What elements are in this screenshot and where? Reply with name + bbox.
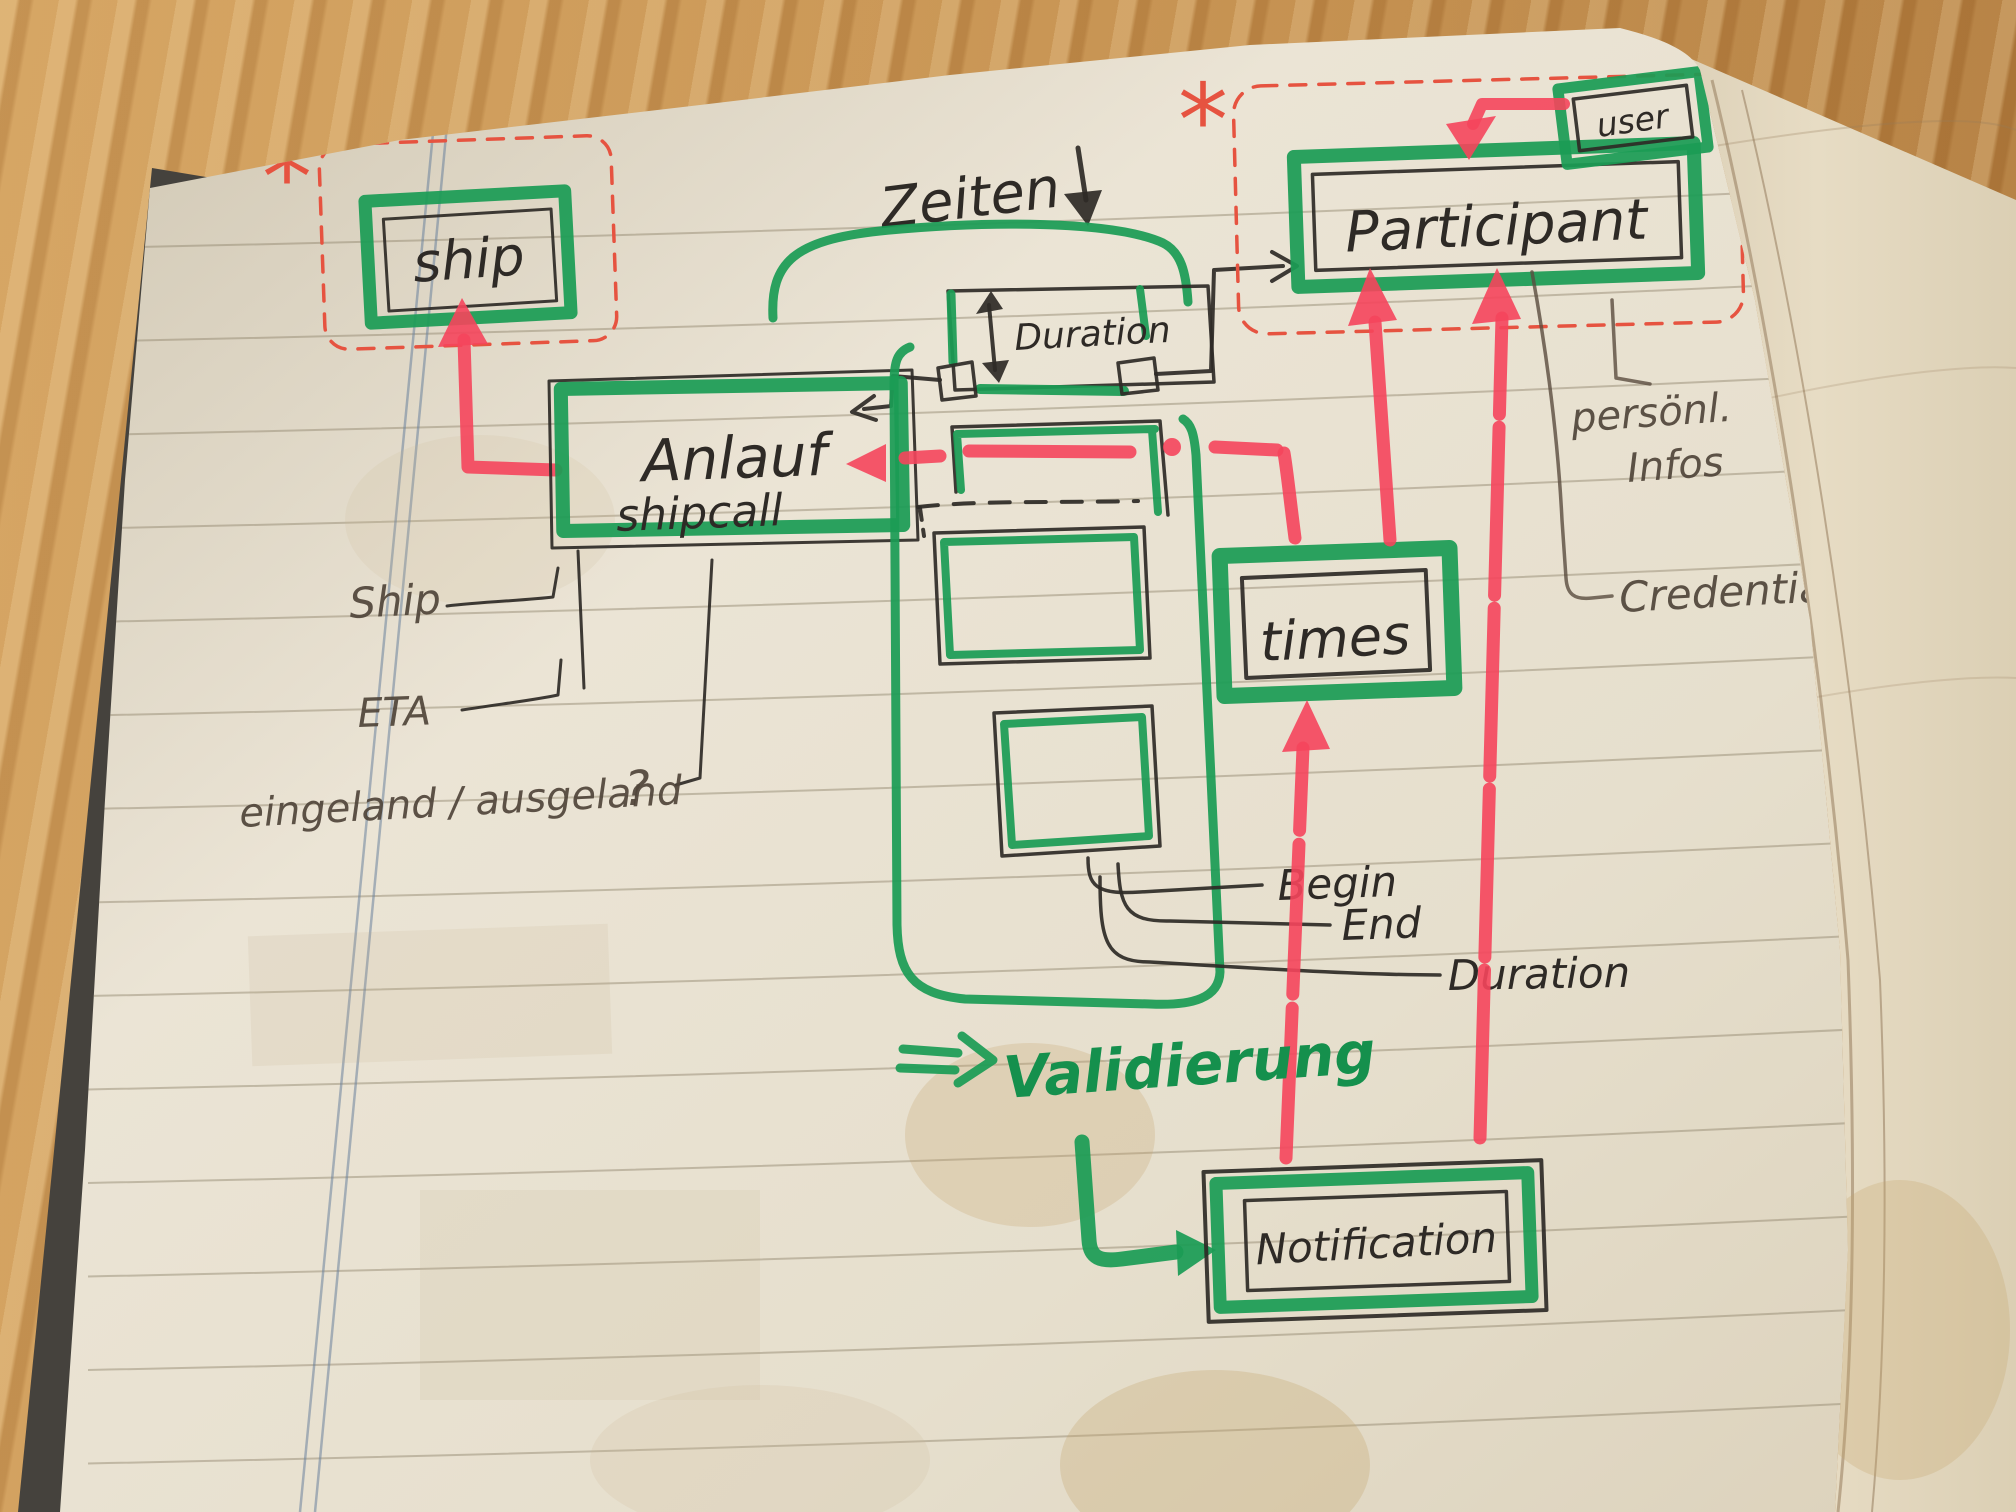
participant-box-label: Participant [1344, 187, 1651, 265]
duration-box-label: Duration [1013, 310, 1171, 359]
eta-attr-label: ETA [357, 688, 432, 737]
duration-box-green-accent [951, 294, 953, 362]
end-label: End [1341, 898, 1423, 950]
duration-attr-label: Duration [1447, 948, 1630, 1000]
duration-box-green-accent [980, 389, 1124, 391]
times-box-label: times [1258, 603, 1411, 674]
personal-infos-label-2: Infos [1625, 439, 1725, 492]
notebook-scene: * ship Zeiten Duration [0, 0, 2016, 1512]
wood-desk: * ship Zeiten Duration [0, 0, 2016, 1512]
asterisk-icon: * [262, 119, 312, 236]
ship-attr-label: Ship [348, 574, 442, 628]
asterisk-icon: * [1178, 62, 1228, 179]
anlauf-box-label: Anlauf [637, 421, 836, 496]
question-mark-label: ? [624, 761, 649, 817]
ship-box-label: ship [411, 224, 527, 295]
anlauf-box-sublabel: shipcall [615, 485, 784, 542]
